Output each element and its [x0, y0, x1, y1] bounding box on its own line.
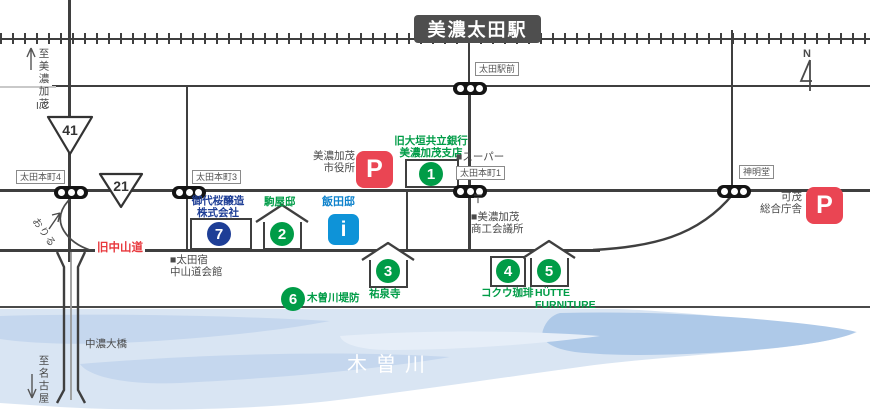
spot-3-marker: 3 [376, 259, 400, 283]
station-sign: 美濃太田駅 [414, 15, 541, 43]
kiso-river-label: 木曽川 [347, 348, 434, 377]
house-roof-spot3 [362, 243, 414, 260]
info-spot-label: 飯田邸 [322, 197, 355, 209]
station-name: 美濃太田駅 [428, 16, 528, 42]
access-map: 美濃太田駅 N 至美濃加茂 I.C 至名古屋 41 21 太田本町4 太田本町3… [0, 0, 870, 419]
kamo-gov-label: 可茂 総合庁舎 [744, 192, 802, 215]
post-office-mark: 〒 [472, 194, 484, 206]
parking-icon-kamo: P [806, 187, 843, 224]
chamber-label: ■美濃加茂 商工会議所 [471, 212, 524, 235]
arrow-down-nagoya-icon [28, 374, 36, 398]
spot-6-marker: 6 [281, 287, 305, 311]
compass-north-icon [801, 60, 812, 91]
house-roof-spot5 [523, 241, 575, 258]
intersection-ota-ekimae: 太田駅前 [475, 62, 519, 76]
map-structures [0, 0, 870, 419]
intersection-ota-honmachi3: 太田本町3 [192, 170, 241, 184]
supermarket-label: ■スーパー [456, 152, 504, 164]
spot-5-marker: 5 [537, 259, 561, 283]
road-curve-shinmeido [593, 194, 733, 250]
intersection-ota-honmachi1: 太田本町1 [456, 166, 505, 180]
direction-to-nagoya: 至名古屋 [37, 355, 49, 405]
spot-4-label: コクウ珈琲 [481, 288, 534, 300]
spot-2-marker: 2 [270, 222, 294, 246]
chuno-bridge-label: 中濃大橋 [85, 339, 127, 351]
route41-number: 41 [56, 122, 84, 138]
bridge-right-edge [78, 252, 85, 403]
traffic-light-ekimae [453, 82, 487, 95]
route21-number: 21 [107, 178, 135, 194]
spot-7-label: 御代桜醸造 株式会社 [186, 196, 250, 219]
info-icon: i [328, 214, 359, 245]
otajuku-hall-label: ■太田宿 中山道会館 [170, 255, 223, 278]
direction-to-ic-suffix: I.C [36, 101, 49, 113]
spot-5-label: HÜTTE FURNITURE [535, 288, 596, 311]
intersection-shinmeido: 神明堂 [739, 165, 774, 179]
spot-3-label: 祐泉寺 [369, 289, 401, 301]
road-ramp [60, 197, 90, 250]
traffic-light-hon4 [54, 186, 88, 199]
spot-1-marker: 1 [419, 162, 443, 186]
arrow-up-ic-icon [27, 48, 35, 70]
spot-7-marker: 7 [207, 222, 231, 246]
intersection-ota-honmachi4: 太田本町4 [16, 170, 65, 184]
spot-6-label: 木曽川堤防 [307, 293, 360, 305]
spot-2-label: 駒屋邸 [264, 197, 296, 209]
bridge-left-edge [57, 252, 64, 403]
compass-north-label: N [803, 48, 811, 60]
spot-4-marker: 4 [496, 259, 520, 283]
cityhall-label: 美濃加茂 市役所 [297, 151, 355, 174]
old-nakasendo-label: 旧中山道 [95, 243, 145, 255]
